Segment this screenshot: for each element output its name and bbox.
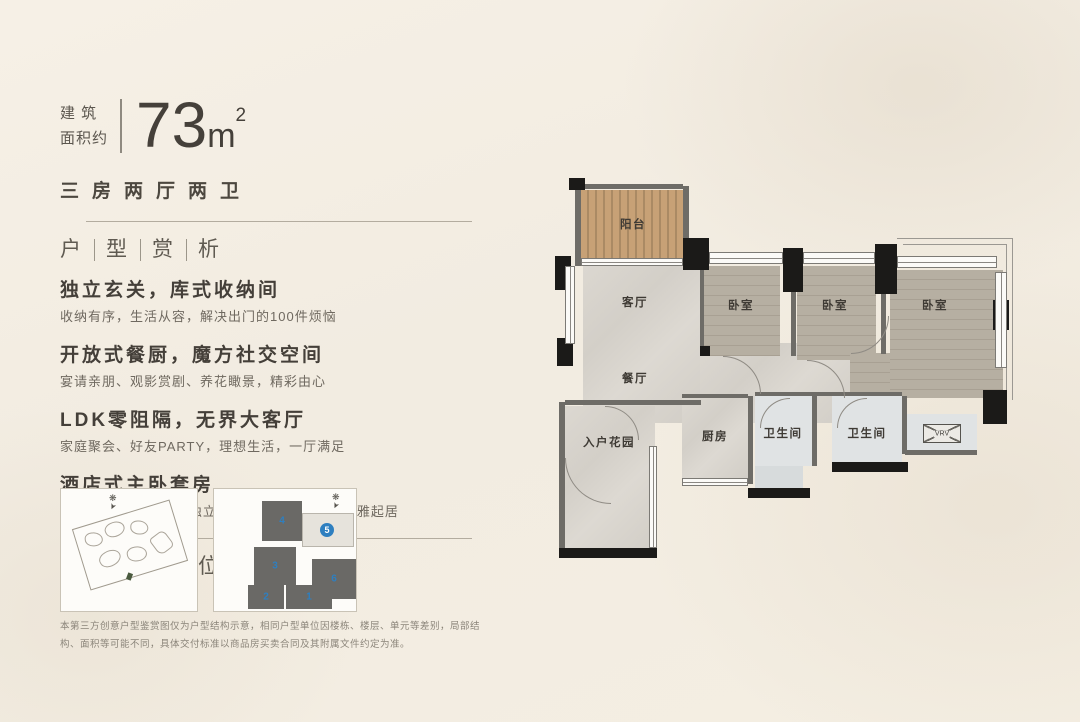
feature-item: LDK零阻隔，无界大客厅 家庭聚会、好友PARTY，理想生活，一厅满足 — [60, 405, 472, 455]
area-unit: m2 — [207, 117, 246, 155]
key-plan-box: ❋➤ 4 5 3 6 2 1 — [213, 488, 357, 612]
feature-item: 开放式餐厨，魔方社交空间 宴请亲朋、观影赏剧、养花瞰景，精彩由心 — [60, 340, 472, 390]
unit-marker-6: 6 — [331, 574, 337, 585]
layout-type: 三房两厅两卫 — [60, 176, 472, 203]
feature-item: 独立玄关，库式收纳间 收纳有序，生活从容，解决出门的100件烦恼 — [60, 275, 472, 325]
feature-list: 独立玄关，库式收纳间 收纳有序，生活从容，解决出门的100件烦恼 开放式餐厨，魔… — [60, 275, 472, 520]
room-label-kitchen: 厨房 — [702, 428, 728, 444]
header-divider-line — [120, 99, 122, 153]
site-building-sketch — [148, 529, 174, 556]
unit-marker-2: 2 — [263, 592, 269, 603]
disclaimer-text: 本第三方创意户型鉴赏图仅为户型结构示意，相同户型单位因楼栋、楼层、单元等差别，局… — [60, 618, 492, 653]
area-number: 73 — [136, 89, 207, 161]
area-category-line2: 面积约 — [60, 126, 110, 151]
vrv-ac-unit: VRV — [923, 424, 961, 443]
feature-title: LDK零阻隔，无界大客厅 — [60, 405, 472, 432]
bedroom3-window — [897, 256, 997, 268]
feature-title: 独立玄关，库式收纳间 — [60, 275, 472, 302]
feature-title: 开放式餐厨，魔方社交空间 — [60, 340, 472, 367]
compass-icon: ❋➤ — [109, 494, 117, 511]
room-label-bedroom1: 卧室 — [728, 297, 754, 313]
title-char: 型 — [95, 239, 141, 261]
area-value: 73m2 — [136, 86, 246, 166]
area-category-line1: 建 筑 — [60, 101, 110, 126]
kitchen-window — [682, 478, 748, 486]
title-char: 户 — [60, 239, 95, 261]
vrv-label: VRV — [934, 430, 950, 437]
site-plan-box: ❋➤ — [60, 488, 198, 612]
area-superscript: 2 — [236, 105, 247, 126]
room-label-bathroom1: 卫生间 — [764, 425, 803, 441]
room-label-bathroom2: 卫生间 — [848, 425, 887, 441]
compass-icon: ❋➤ — [332, 493, 340, 510]
section-divider-top — [86, 221, 472, 222]
room-label-entry-garden: 入户花园 — [583, 434, 635, 450]
room-label-living: 客厅 — [622, 294, 648, 310]
room-label-bedroom3: 卧室 — [922, 297, 948, 313]
location-diagrams: ❋➤ ❋➤ 4 5 3 6 2 1 — [60, 488, 472, 612]
site-building-sketch — [130, 520, 148, 534]
bedroom2-window — [803, 252, 875, 264]
site-building-sketch — [84, 532, 103, 548]
feature-desc: 家庭聚会、好友PARTY，理想生活，一厅满足 — [60, 436, 472, 455]
unit-marker-1: 1 — [306, 592, 312, 603]
bedroom3-side-window — [995, 272, 1007, 368]
site-marker — [126, 572, 133, 580]
unit-marker-4: 4 — [279, 516, 285, 527]
section-title-analysis: 户 型 赏 析 — [60, 239, 472, 261]
floor-plan: VRV 阳台 客厅 餐厅 卧室 卧室 卧室 入户花园 厨房 卫生间 卫生间 — [545, 150, 1025, 612]
area-category-label: 建 筑 面积约 — [60, 101, 110, 151]
room-label-bedroom2: 卧室 — [822, 297, 848, 313]
feature-desc: 收纳有序，生活从容，解决出门的100件烦恼 — [60, 306, 472, 325]
site-building-sketch — [97, 546, 124, 571]
balcony-door-window — [581, 258, 683, 266]
bedroom1-window — [709, 252, 783, 264]
room-label-balcony: 阳台 — [620, 216, 646, 232]
area-header: 建 筑 面积约 73m2 — [60, 86, 472, 166]
site-building-sketch — [126, 545, 148, 564]
title-char: 析 — [187, 239, 232, 261]
title-char: 赏 — [141, 239, 187, 261]
site-building-sketch — [103, 518, 127, 540]
unit-marker-3: 3 — [272, 561, 278, 572]
unit-marker-5: 5 — [320, 523, 334, 537]
room-label-dining: 餐厅 — [622, 370, 648, 386]
entry-garden-glass — [649, 446, 657, 548]
living-window — [565, 266, 575, 344]
feature-desc: 宴请亲朋、观影赏剧、养花瞰景，精彩由心 — [60, 371, 472, 390]
